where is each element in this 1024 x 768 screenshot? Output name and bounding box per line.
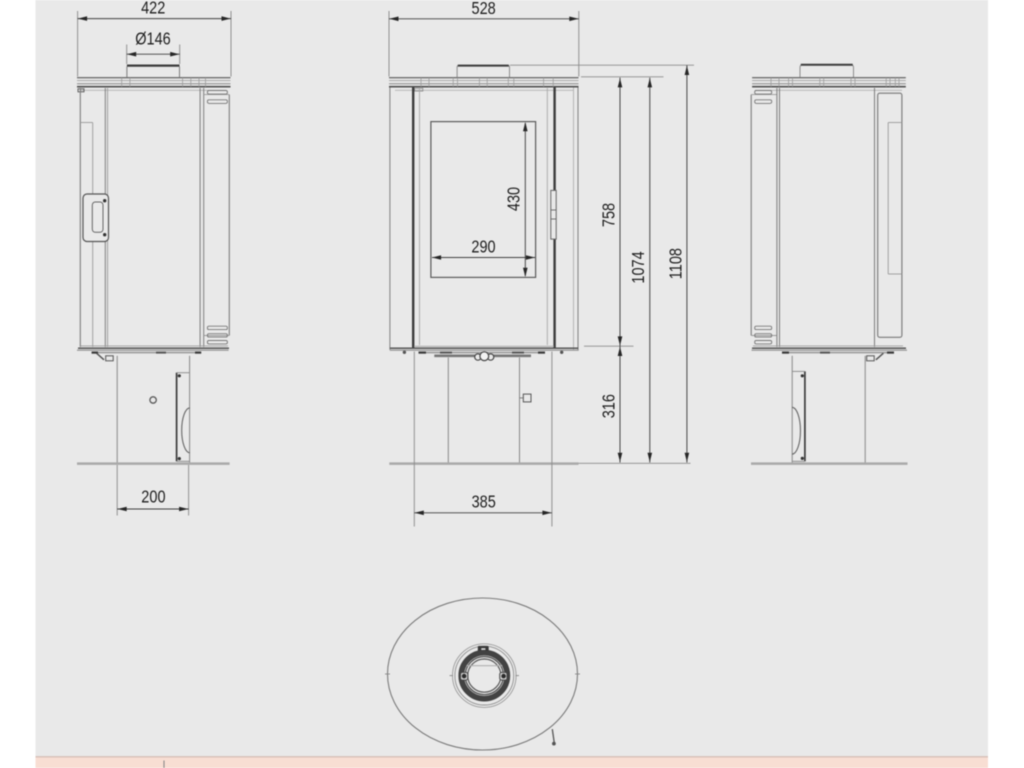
- svg-text:385: 385: [472, 492, 496, 512]
- svg-text:290: 290: [471, 237, 495, 257]
- svg-text:200: 200: [141, 487, 165, 507]
- svg-text:316: 316: [599, 394, 619, 418]
- svg-text:Ø146: Ø146: [135, 29, 170, 49]
- svg-text:430: 430: [504, 187, 524, 211]
- svg-text:1108: 1108: [666, 248, 686, 279]
- svg-text:528: 528: [472, 0, 496, 18]
- svg-text:1074: 1074: [629, 251, 649, 283]
- svg-text:422: 422: [141, 0, 165, 18]
- svg-text:758: 758: [599, 203, 619, 227]
